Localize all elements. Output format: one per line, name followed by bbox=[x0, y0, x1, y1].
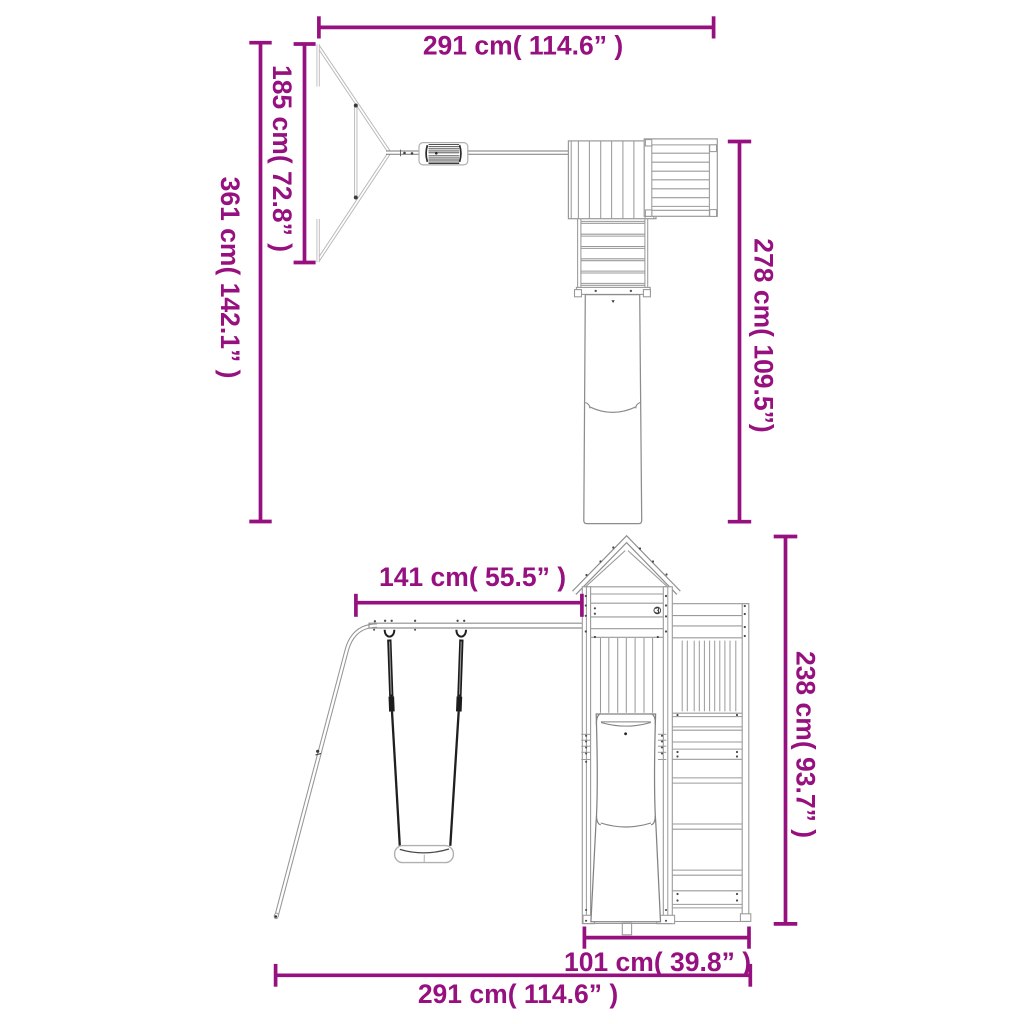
svg-text:361 cm( 142.1” ): 361 cm( 142.1” ) bbox=[215, 177, 245, 379]
svg-text:238 cm( 93.7” ): 238 cm( 93.7” ) bbox=[791, 651, 821, 838]
svg-text:141 cm( 55.5” ): 141 cm( 55.5” ) bbox=[379, 562, 566, 592]
svg-text:101 cm( 39.8” ): 101 cm( 39.8” ) bbox=[564, 947, 751, 977]
svg-text:291 cm( 114.6” ): 291 cm( 114.6” ) bbox=[423, 31, 623, 61]
svg-text:278 cm( 109.5”): 278 cm( 109.5”) bbox=[749, 238, 779, 432]
svg-text:291 cm( 114.6” ): 291 cm( 114.6” ) bbox=[418, 979, 618, 1009]
svg-text:185 cm( 72.8” ): 185 cm( 72.8” ) bbox=[267, 65, 297, 252]
